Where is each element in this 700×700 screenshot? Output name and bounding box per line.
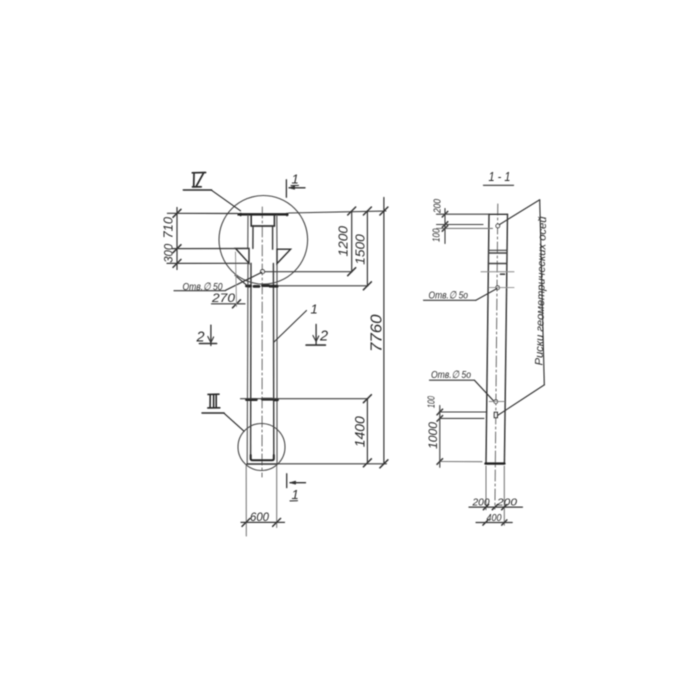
svg-text:710: 710 (162, 217, 176, 239)
svg-text:1400: 1400 (353, 416, 368, 447)
svg-text:200: 200 (471, 497, 489, 508)
svg-text:2: 2 (319, 329, 328, 345)
svg-text:Отв.∅ 5о: Отв.∅ 5о (431, 369, 471, 381)
svg-text:1500: 1500 (353, 233, 368, 264)
svg-text:1: 1 (292, 487, 299, 502)
svg-text:300: 300 (162, 243, 176, 262)
svg-text:7760: 7760 (369, 314, 386, 352)
svg-text:100: 100 (426, 396, 438, 408)
svg-text:2: 2 (196, 330, 205, 346)
svg-text:600: 600 (250, 512, 270, 524)
svg-text:Отв.∅ 5о: Отв.∅ 5о (429, 290, 469, 302)
svg-text:1: 1 (292, 172, 299, 187)
svg-text:1000: 1000 (428, 421, 440, 449)
svg-text:200: 200 (432, 199, 444, 214)
svg-text:1200: 1200 (336, 225, 351, 256)
svg-text:270: 270 (211, 291, 236, 305)
svg-text:400: 400 (487, 512, 502, 524)
svg-text:100: 100 (431, 228, 443, 242)
svg-text:1: 1 (311, 302, 318, 317)
svg-text:200: 200 (496, 497, 518, 508)
svg-text:1 - 1: 1 - 1 (489, 169, 511, 184)
